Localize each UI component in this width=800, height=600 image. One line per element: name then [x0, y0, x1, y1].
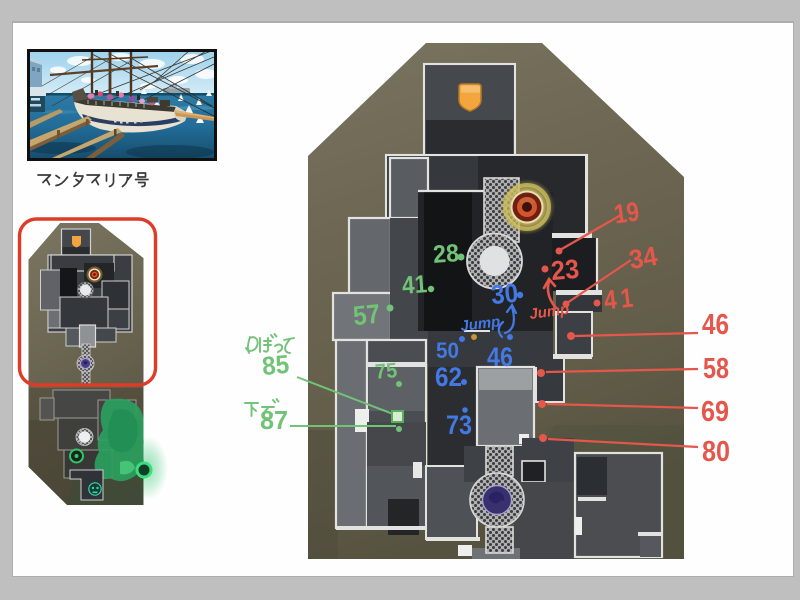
- svg-text:30: 30: [490, 278, 520, 310]
- svg-text:46: 46: [487, 342, 513, 372]
- svg-text:85: 85: [261, 349, 291, 381]
- svg-text:41: 41: [603, 282, 639, 315]
- svg-text:73: 73: [446, 410, 472, 440]
- svg-text:69: 69: [701, 396, 729, 428]
- svg-text:50: 50: [436, 338, 459, 363]
- svg-text:41: 41: [401, 270, 428, 300]
- svg-text:28: 28: [432, 239, 460, 269]
- svg-text:34: 34: [627, 241, 660, 275]
- svg-text:87: 87: [260, 405, 288, 435]
- svg-text:23: 23: [550, 254, 581, 286]
- svg-text:58: 58: [703, 353, 729, 385]
- svg-text:75: 75: [374, 359, 398, 384]
- svg-text:57: 57: [352, 299, 382, 332]
- svg-text:46: 46: [702, 309, 729, 341]
- svg-text:19: 19: [612, 196, 641, 229]
- svg-text:80: 80: [702, 436, 730, 468]
- svg-text:62: 62: [435, 362, 462, 392]
